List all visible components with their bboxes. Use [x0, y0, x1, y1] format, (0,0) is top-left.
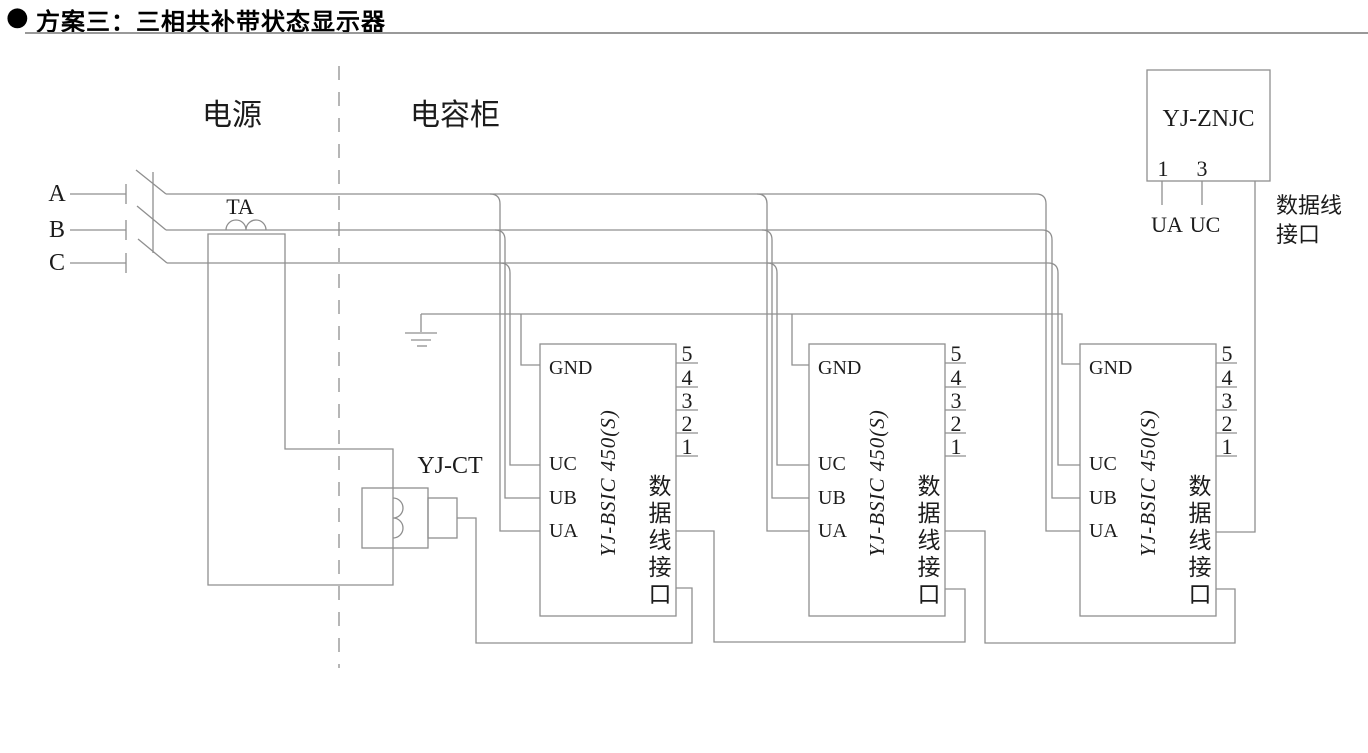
circuit-diagram-page: ● 方案三：三相共补带状态显示器 电源 电容柜 A B C TA YJ-CT G… [0, 0, 1368, 753]
gnd-terminal-label: GND [1089, 357, 1132, 380]
phase-b-label: B [42, 217, 72, 244]
bsic-module-3: GND UC UB UA YJ-BSIC 450(S) 数据线接口 5 4 3 … [1080, 344, 1216, 616]
znjc-data-port-line1: 数据线 [1276, 191, 1342, 220]
znjc-data-port-line2: 接口 [1276, 220, 1342, 249]
pin-5-label: 5 [1218, 341, 1236, 367]
ua-terminal-label: UA [549, 520, 578, 543]
ub-terminal-label: UB [549, 487, 577, 510]
data-port-label: 数据线接口 [909, 474, 943, 624]
znjc-ua-label: UA [1150, 212, 1184, 238]
znjc-pin-1-label: 1 [1155, 156, 1171, 182]
uc-terminal-label: UC [1089, 453, 1117, 476]
pin-5-label: 5 [678, 341, 696, 367]
gnd-terminal-label: GND [818, 357, 861, 380]
module-name-label: YJ-BSIC 450(S) [865, 378, 891, 588]
ta-transformer-symbol [208, 220, 393, 585]
capacitor-cabinet-label: 电容柜 [380, 90, 530, 134]
title-bullet: ● [6, 4, 29, 30]
znjc-name-label: YJ-ZNJC [1147, 106, 1270, 133]
uc-terminal-label: UC [549, 453, 577, 476]
pin-1-label: 1 [678, 434, 696, 460]
data-port-label: 数据线接口 [1180, 474, 1214, 624]
yj-ct-label: YJ-CT [408, 453, 492, 480]
pin-1-label: 1 [1218, 434, 1236, 460]
data-port-label: 数据线接口 [640, 474, 674, 624]
power-section-label: 电源 [182, 90, 282, 134]
phase-c-label: C [42, 250, 72, 277]
phase-a-label: A [42, 181, 72, 208]
uc-terminal-label: UC [818, 453, 846, 476]
znjc-uc-label: UC [1188, 212, 1222, 238]
pin-5-label: 5 [947, 341, 965, 367]
module-name-label: YJ-BSIC 450(S) [1136, 378, 1162, 588]
bsic-module-1: GND UC UB UA YJ-BSIC 450(S) 数据线接口 5 4 3 … [540, 344, 676, 616]
bsic-module-2: GND UC UB UA YJ-BSIC 450(S) 数据线接口 5 4 3 … [809, 344, 945, 616]
gnd-terminal-label: GND [549, 357, 592, 380]
ub-terminal-label: UB [818, 487, 846, 510]
znjc-pin-3-label: 3 [1194, 156, 1210, 182]
ub-terminal-label: UB [1089, 487, 1117, 510]
znjc-data-port-label: 数据线 接口 [1276, 191, 1342, 249]
ua-terminal-label: UA [818, 520, 847, 543]
pin-1-label: 1 [947, 434, 965, 460]
ta-label: TA [213, 194, 267, 220]
title-rule [25, 32, 1368, 34]
ua-terminal-label: UA [1089, 520, 1118, 543]
ground-bus [405, 314, 1080, 365]
module-name-label: YJ-BSIC 450(S) [596, 378, 622, 588]
